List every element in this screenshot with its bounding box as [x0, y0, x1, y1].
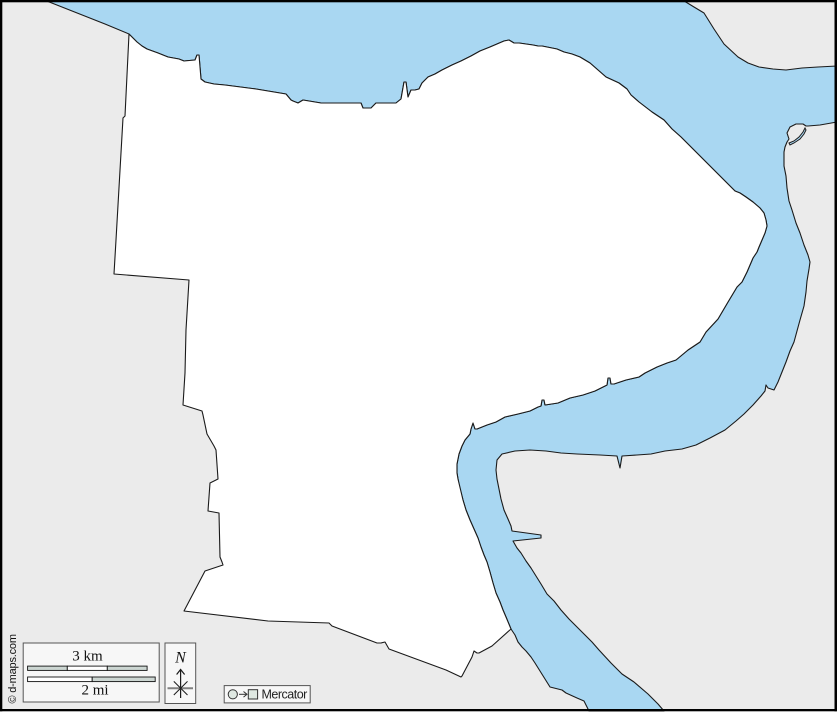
svg-text:2 mi: 2 mi — [81, 683, 108, 699]
svg-text:3 km: 3 km — [72, 649, 103, 665]
svg-text:N: N — [174, 650, 187, 667]
svg-text:Mercator: Mercator — [262, 688, 308, 702]
svg-text:© d-maps.com: © d-maps.com — [7, 634, 19, 703]
